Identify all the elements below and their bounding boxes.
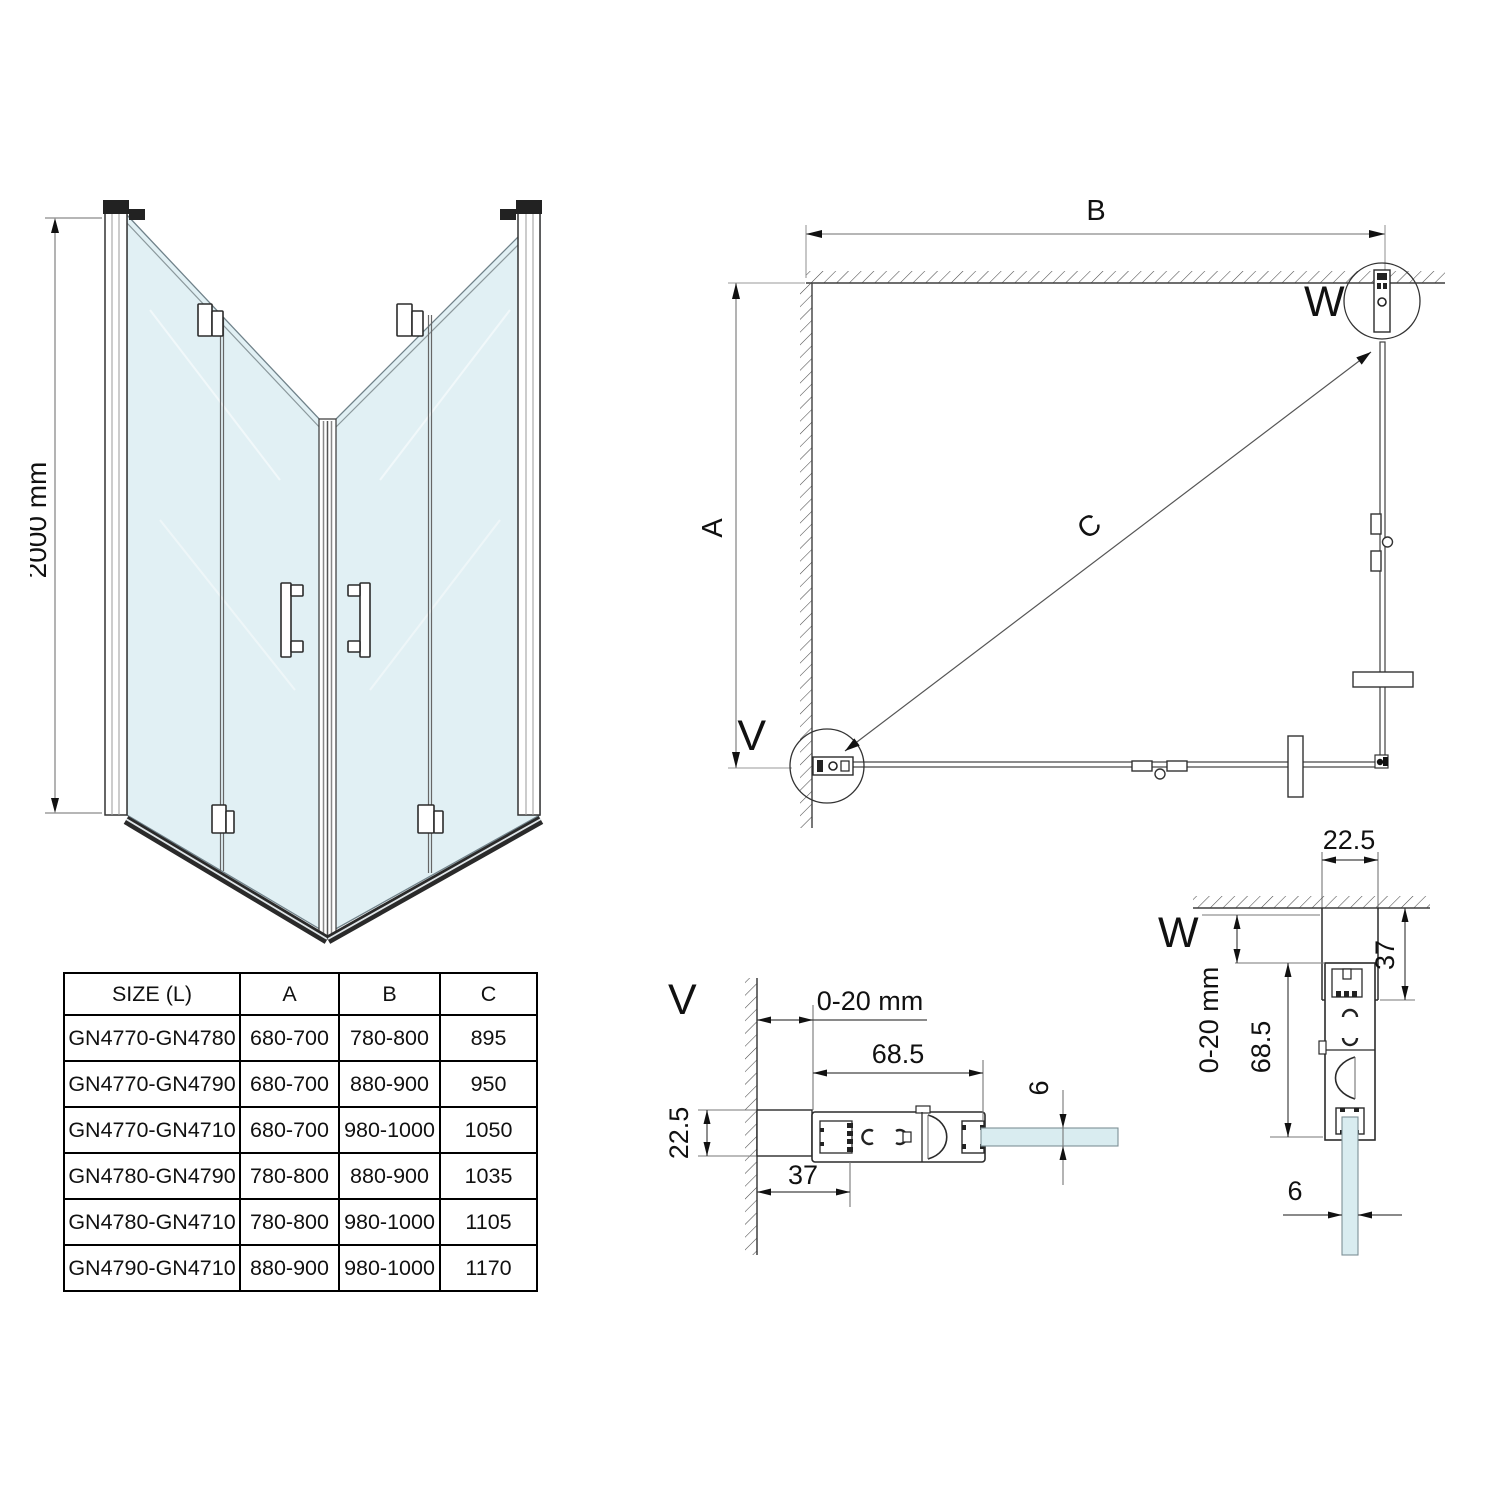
- dimension-c: C: [845, 352, 1371, 751]
- detail-w-drawing: W 22.5: [1140, 825, 1500, 1305]
- header-a: A: [240, 973, 339, 1015]
- dimension-a: A: [700, 283, 805, 768]
- dimension-b: B: [806, 195, 1385, 278]
- dimension-height-w: 68.5: [1246, 963, 1323, 1137]
- wall-left: [800, 283, 812, 828]
- detail-v-drawing: V: [640, 960, 1120, 1290]
- corner-connector: [1375, 755, 1388, 768]
- depth-dim-label-v: 22.5: [664, 1107, 694, 1160]
- dimension-depth-v: 22.5: [664, 1107, 756, 1160]
- plan-v-label: V: [737, 712, 766, 760]
- table-row: GN4770-GN4710680-700 980-10001050: [64, 1107, 537, 1153]
- handle-bottom-plan: [1288, 736, 1303, 797]
- height-dim-label: 2000 mm: [30, 462, 52, 579]
- glass-section-v: [981, 1128, 1118, 1146]
- wall-section-w: [1193, 896, 1430, 908]
- table-row: GN4780-GN4790780-800 880-9001035: [64, 1153, 537, 1199]
- technical-drawing-page: 2000 mm B: [0, 0, 1500, 1500]
- detail-w-label: W: [1158, 909, 1199, 957]
- glass-dim-label-v: 6: [1024, 1080, 1054, 1095]
- width-dim-label-v: 68.5: [872, 1039, 925, 1069]
- table-row: GN4770-GN4780680-700 780-800895: [64, 1015, 537, 1061]
- table-row: GN4790-GN4710880-900 980-10001170: [64, 1245, 537, 1291]
- glass-section-w: [1342, 1117, 1358, 1255]
- plan-w-label: W: [1304, 278, 1345, 326]
- profile-section-v: [757, 1106, 985, 1162]
- hinge-top-left: [198, 304, 223, 336]
- dimension-height: 2000 mm: [30, 218, 102, 813]
- size-table: SIZE (L) A B C GN4770-GN4780680-700 780-…: [63, 972, 538, 1292]
- height-dim-label-w: 68.5: [1246, 1021, 1276, 1074]
- wall-section-v: [745, 978, 757, 1255]
- header-b: B: [339, 973, 440, 1015]
- dim-c-label: C: [1072, 508, 1108, 546]
- header-c: C: [440, 973, 537, 1015]
- front-view-drawing: 2000 mm: [30, 190, 590, 960]
- gap-dim-label-v: 0-20 mm: [817, 986, 924, 1016]
- plan-view-drawing: B A: [700, 190, 1480, 890]
- wall-dim-label-v: 37: [788, 1160, 818, 1190]
- dim-a-label: A: [700, 518, 729, 538]
- dim-b-label: B: [1086, 195, 1105, 227]
- table-row: GN4770-GN4790680-700 880-900950: [64, 1061, 537, 1107]
- dimension-width-v: 68.5: [813, 1039, 983, 1120]
- dimension-wall-w: 37: [1370, 908, 1415, 1000]
- glass-dim-label-w: 6: [1287, 1176, 1302, 1206]
- dimension-wall-v: 37: [757, 1160, 850, 1207]
- table-row: GN4780-GN4710780-800 980-10001105: [64, 1199, 537, 1245]
- header-size: SIZE (L): [64, 973, 240, 1015]
- width-dim-label-w: 22.5: [1323, 825, 1376, 855]
- table-header-row: SIZE (L) A B C: [64, 973, 537, 1015]
- wall-dim-label-w: 37: [1370, 940, 1400, 970]
- corner-post: [319, 419, 336, 937]
- handle-right-plan: [1353, 672, 1413, 687]
- gap-dim-label-w: 0-20 mm: [1194, 967, 1224, 1074]
- detail-v-label: V: [668, 976, 697, 1024]
- hinge-top-right: [397, 304, 423, 336]
